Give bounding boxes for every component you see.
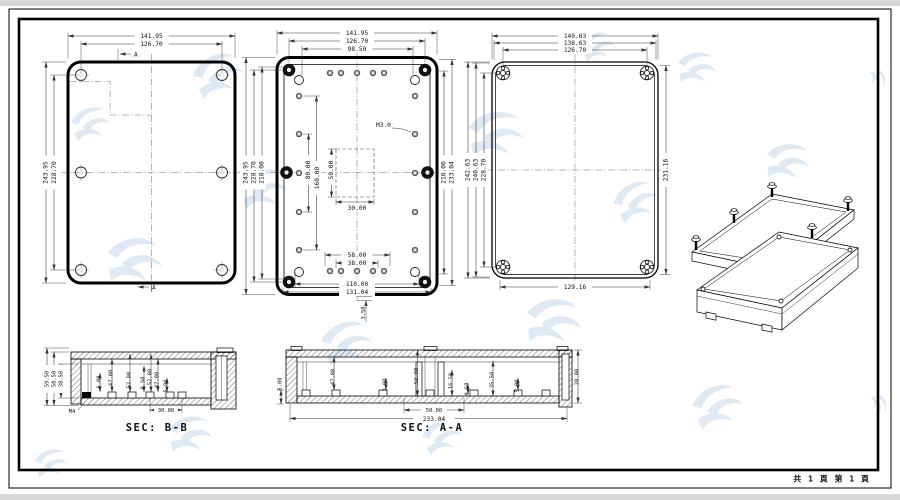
section-marker: A (152, 285, 156, 292)
section-title: SEC: A-A (401, 422, 464, 434)
dim-label: 210.00 (441, 161, 448, 184)
dim-label: 131.04 (346, 289, 369, 296)
dim-label: 6.00 (97, 376, 103, 389)
dim-label: 50.00 (328, 160, 335, 179)
dim-label: 3.00 (383, 379, 389, 392)
view-cover-top: 140.63 138.63 126.70 242.63 240.63 228.7… (463, 32, 670, 291)
dim-label: 228.70 (251, 161, 258, 184)
footer-page-info: 共 1 頁 第 1 頁 (793, 474, 870, 484)
section-marker: A (134, 52, 138, 59)
drawing-sheet: 共 1 頁 第 1 頁 A A 141.95 126.70 243.95 228… (0, 0, 900, 500)
dim-label: 20.00 (575, 369, 581, 385)
dim-label: 52.00 (127, 372, 133, 388)
dim-label: 243.95 (243, 161, 250, 184)
dim-label: 140.63 (564, 33, 587, 40)
dim-label: 5.00 (515, 380, 521, 393)
page-edge-top (0, 0, 900, 6)
dim-label: 38.00 (348, 260, 367, 267)
dim-label: 59.50 (45, 371, 51, 387)
dim-label: 38.50 (59, 371, 65, 387)
dim-label: 16.50 (449, 373, 455, 389)
dim-label: 141.95 (346, 30, 369, 37)
dim-label: 47.00 (155, 372, 161, 388)
dim-label: 126.70 (346, 38, 369, 45)
dim-label: 47.00 (331, 369, 337, 385)
dim-label: 110.00 (346, 281, 369, 288)
thread-label: M4 (69, 409, 76, 415)
dim-label: 50.00 (426, 408, 442, 414)
view-lid-top: A A 141.95 126.70 243.95 228.70 (41, 32, 241, 292)
dim-label: 126.70 (140, 41, 163, 48)
page-edge-bottom (0, 494, 900, 500)
dim-label: 52.00 (148, 369, 154, 385)
dim-label: 52.00 (414, 368, 420, 384)
dim-label: 228.70 (51, 161, 58, 184)
thread-label: M3.0 (376, 122, 391, 129)
dim-label: 80.00 (305, 160, 312, 179)
dim-label: 5.00 (164, 380, 170, 393)
dim-label: 228.70 (481, 159, 488, 182)
dim-label: 218.00 (259, 161, 266, 184)
dim-label: 233.04 (449, 161, 456, 184)
dim-label: 160.00 (314, 167, 321, 190)
dim-label: 231.16 (663, 159, 670, 182)
isometric-exploded-view (692, 183, 858, 333)
dim-label: 58.00 (348, 252, 367, 259)
dim-label: 58.50 (52, 371, 58, 387)
dim-label: 141.95 (140, 33, 163, 40)
dim-label: 240.63 (473, 159, 480, 182)
dim-label: 0.50 (465, 383, 471, 396)
dim-label: 30.00 (348, 205, 367, 212)
dim-label: 126.70 (564, 47, 587, 54)
dim-label: 242.63 (465, 159, 472, 182)
dim-label: 35.50 (490, 372, 496, 388)
dim-label: 47.00 (109, 370, 115, 386)
dim-label: 243.95 (43, 161, 50, 184)
dim-label: 6.00 (278, 378, 284, 391)
view-base-interior: M3.0 141.95 126.70 98.50 243.95 228.70 2… (241, 29, 456, 322)
dim-label: 30.00 (158, 408, 174, 414)
section-title: SEC: B-B (126, 422, 189, 434)
dim-label: 3.50 (361, 307, 367, 320)
dim-label: 138.63 (564, 40, 587, 47)
dim-label: 0.50 (141, 377, 147, 390)
engineering-drawing: 共 1 頁 第 1 頁 A A 141.95 126.70 243.95 228… (0, 0, 900, 500)
section-aa-view: 6.00 47.00 3.00 52.00 16.50 0.50 35.50 5… (277, 347, 582, 435)
dim-label: 129.16 (564, 284, 587, 291)
dim-label: 98.50 (348, 46, 367, 53)
